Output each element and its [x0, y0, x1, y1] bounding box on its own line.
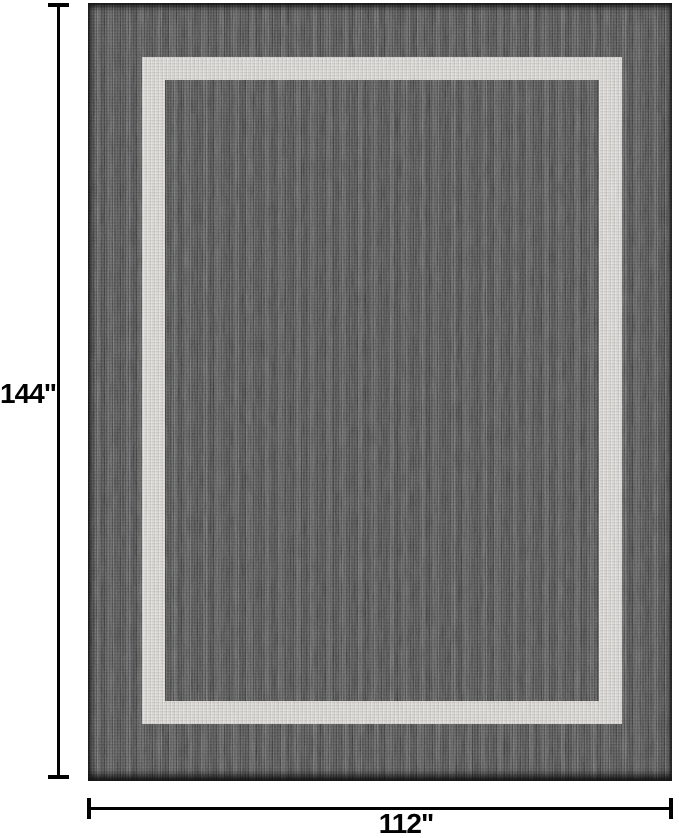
- rug-border-stripe: [142, 57, 622, 724]
- rug-image: [88, 3, 672, 781]
- height-dimension-label: 144": [0, 380, 57, 408]
- product-dimension-figure: 144" 112": [0, 0, 679, 838]
- height-dimension-line: [57, 3, 60, 779]
- rug-inner-field: [165, 80, 599, 701]
- width-dimension-label: 112": [331, 810, 481, 838]
